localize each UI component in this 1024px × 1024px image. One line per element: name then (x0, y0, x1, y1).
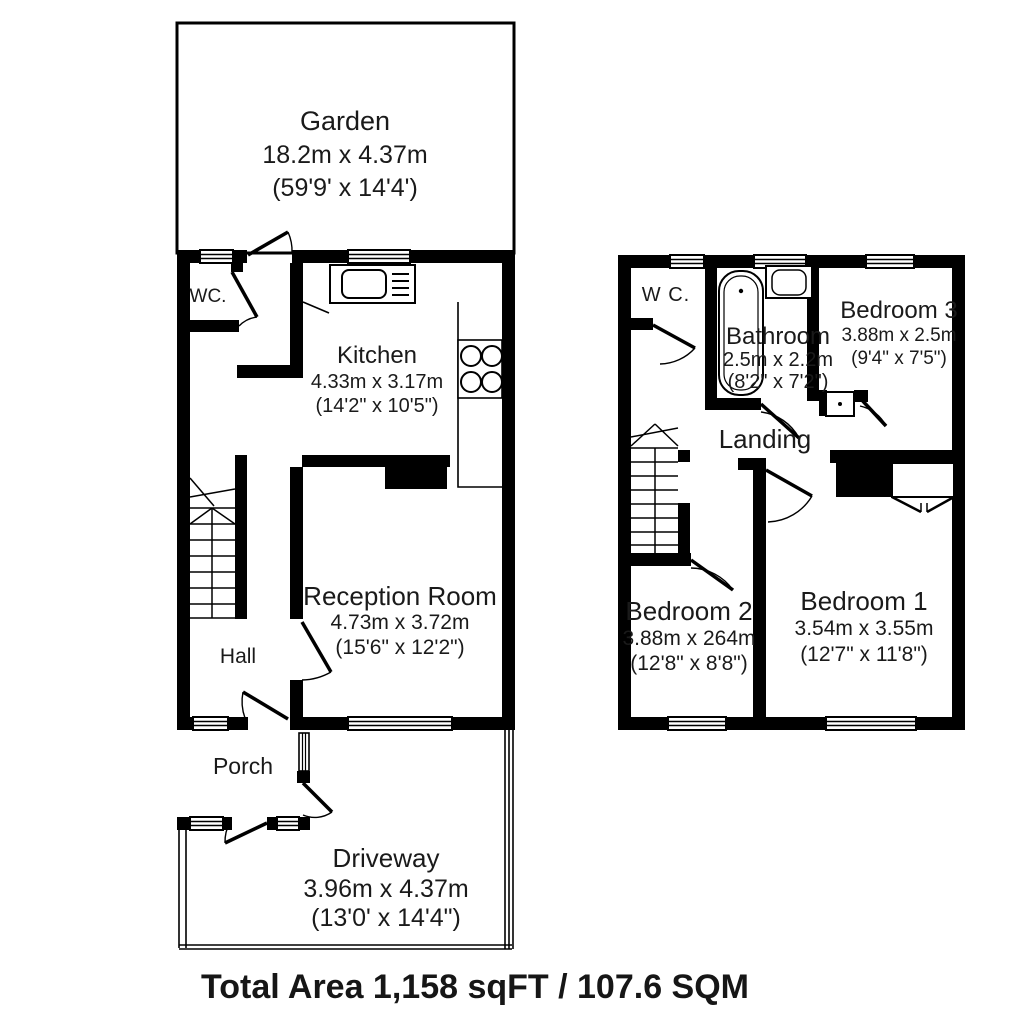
room-label-bedroom2: Bedroom 2 3.88m x 264m (12'8" x 8'8") (622, 597, 755, 676)
room-label-porch: Porch (213, 752, 273, 781)
wc-door (232, 272, 257, 326)
bedroom1-door (766, 470, 812, 522)
kitchen-sink-icon (303, 265, 415, 313)
hob-icon (458, 340, 502, 398)
room-label-driveway: Driveway 3.96m x 4.37m (13'0' x 14'4") (303, 842, 468, 933)
staircase-first (631, 424, 690, 556)
total-area-label: Total Area 1,158 sqFT / 107.6 SQM (201, 968, 749, 1007)
room-label-bathroom: Bathroom 2.5m x 2.2m (8'2" x 7'2") (723, 324, 833, 393)
room-label-landing: Landing (719, 423, 812, 456)
room-label-hall: Hall (220, 644, 256, 670)
room-label-wc-first: W C. (642, 283, 690, 308)
hall-door (242, 692, 288, 719)
bedroom2-door (691, 560, 733, 590)
wardrobe-icon (892, 463, 954, 512)
room-label-kitchen: Kitchen 4.33m x 3.17m (14'2" x 10'5") (311, 342, 443, 418)
floorplan-drawing (0, 0, 1024, 1024)
room-label-bedroom3: Bedroom 3 3.88m x 2.5m (9'4" x 7'5") (840, 297, 957, 370)
room-label-bedroom1: Bedroom 1 3.54m x 3.55m (12'7" x 11'8") (795, 587, 934, 668)
room-label-reception: Reception Room 4.73m x 3.72m (15'6" x 12… (303, 582, 497, 660)
porch-walls (177, 733, 310, 830)
floorplan-canvas: Garden 18.2m x 4.37m (59'9' x 14'4') WC.… (0, 0, 1024, 1024)
wc-first-door (653, 325, 695, 364)
porch-side-door (303, 783, 332, 817)
wc-first-walls (618, 318, 653, 330)
landing-walls (618, 458, 766, 717)
wash-basin-icon (766, 266, 812, 298)
room-label-garden: Garden 18.2m x 4.37m (59'9' x 14'4') (262, 103, 427, 205)
room-label-wc-ground: WC. (190, 285, 227, 309)
staircase-ground (190, 455, 247, 619)
